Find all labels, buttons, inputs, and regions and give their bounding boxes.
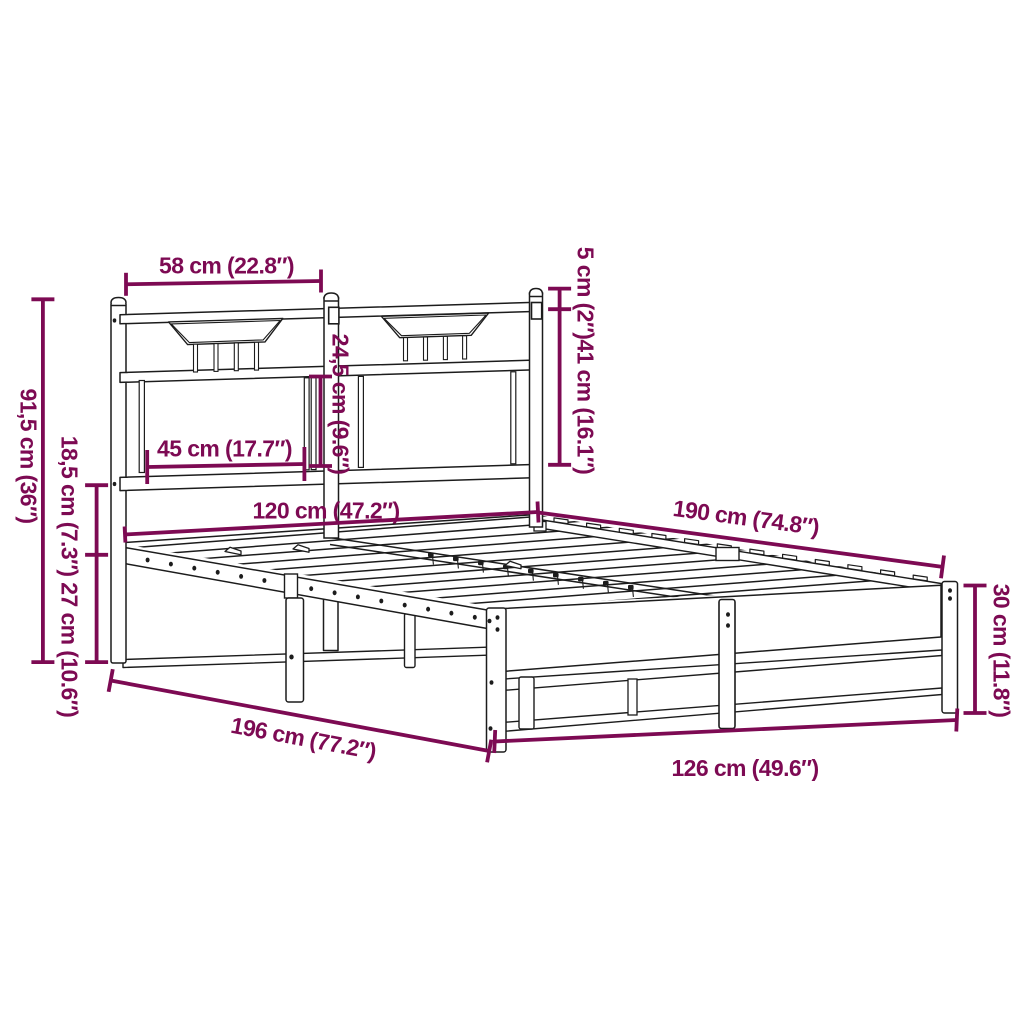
svg-text:58 cm (22.8″): 58 cm (22.8″) [159,253,294,279]
svg-text:30 cm (11.8″): 30 cm (11.8″) [989,584,1015,718]
svg-text:196 cm (77.2″): 196 cm (77.2″) [229,712,378,765]
svg-text:91,5 cm (36″): 91,5 cm (36″) [16,389,42,524]
svg-text:126 cm (49.6″): 126 cm (49.6″) [671,755,818,781]
svg-text:45 cm (17.7″): 45 cm (17.7″) [157,436,292,462]
svg-text:24,5 cm (9.6″): 24,5 cm (9.6″) [328,334,354,475]
svg-text:120 cm (47.2″): 120 cm (47.2″) [252,497,399,523]
svg-text:18,5 cm (7.3″) 27 cm (10.6″): 18,5 cm (7.3″) 27 cm (10.6″) [57,436,83,717]
svg-text:5 cm (2″)41 cm (16.1″): 5 cm (2″)41 cm (16.1″) [573,247,599,474]
